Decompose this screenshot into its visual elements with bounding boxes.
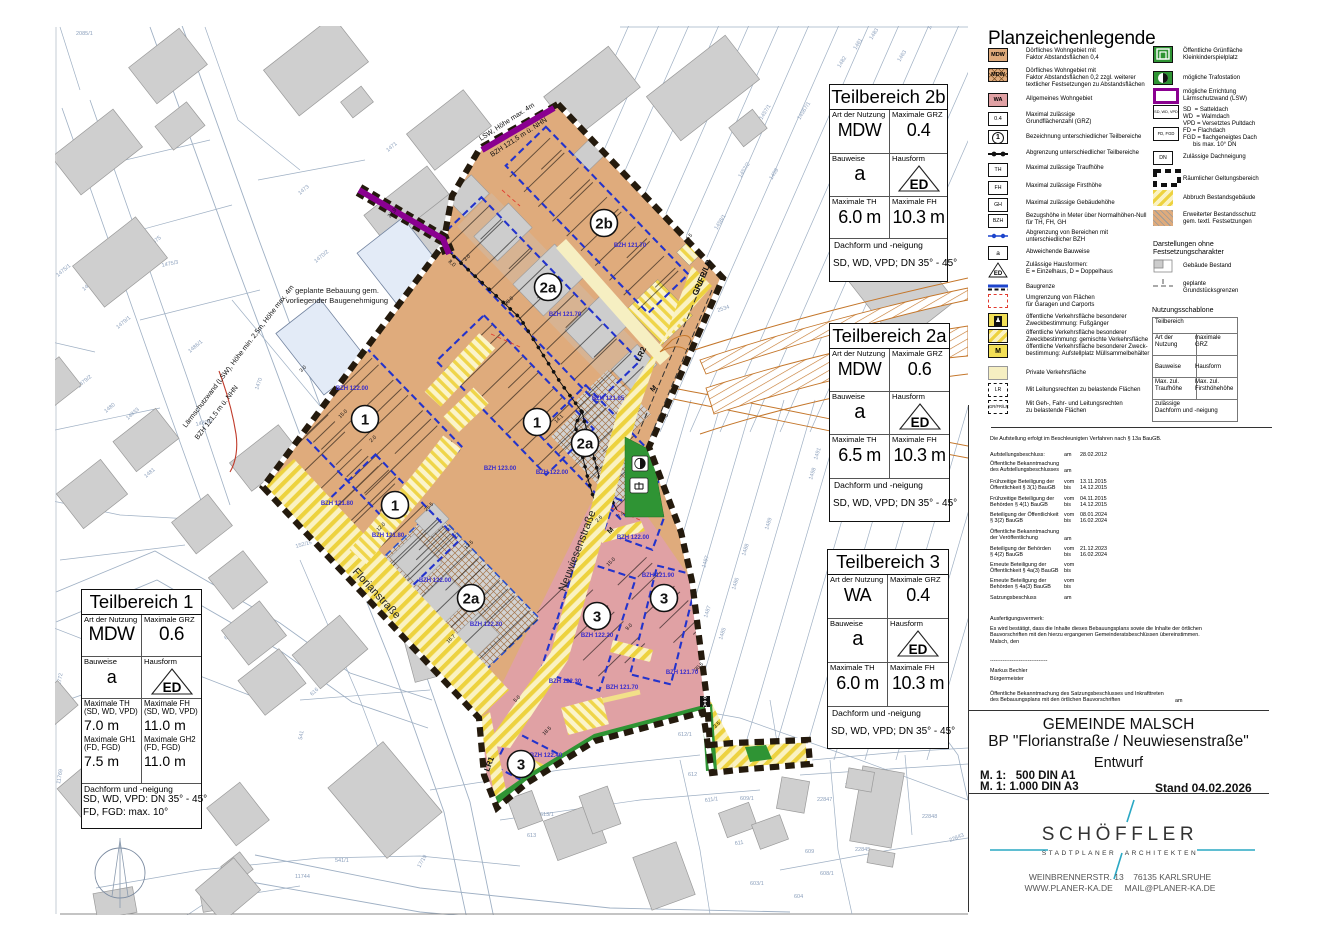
svg-text:603/1: 603/1 — [750, 881, 764, 887]
svg-text:ED: ED — [910, 415, 929, 430]
svg-text:BZH 122.00: BZH 122.00 — [419, 578, 452, 584]
svg-text:BZH 122.00: BZH 122.00 — [536, 470, 569, 476]
svg-text:613/1: 613/1 — [540, 812, 554, 818]
svg-text:1459: 1459 — [769, 167, 781, 181]
svg-text:1458/1: 1458/1 — [714, 214, 728, 231]
svg-text:611: 611 — [734, 840, 744, 847]
svg-text:22843: 22843 — [949, 833, 965, 844]
svg-text:BZH 122.00: BZH 122.00 — [617, 535, 650, 541]
svg-text:geplante Bebauung gem.: geplante Bebauung gem. — [295, 286, 379, 295]
svg-text:541: 541 — [298, 730, 306, 740]
svg-text:1481: 1481 — [143, 467, 156, 479]
svg-text:ED: ED — [909, 177, 928, 192]
svg-text:BZH 121.70: BZH 121.70 — [666, 670, 699, 676]
svg-text:1483: 1483 — [869, 27, 881, 41]
svg-text:608/1: 608/1 — [820, 871, 834, 877]
svg-text:14567/1: 14567/1 — [797, 101, 813, 121]
svg-text:1486/1: 1486/1 — [187, 339, 204, 354]
svg-text:1498: 1498 — [808, 467, 817, 481]
svg-text:BZH 122.20: BZH 122.20 — [470, 622, 503, 628]
svg-text:1475/1: 1475/1 — [55, 263, 72, 278]
svg-text:1485: 1485 — [718, 627, 727, 641]
svg-text:1489: 1489 — [764, 517, 773, 531]
svg-text:BZH 121.70: BZH 121.70 — [614, 243, 647, 249]
svg-text:BZH 121.80: BZH 121.80 — [372, 533, 405, 539]
svg-text:613: 613 — [527, 833, 536, 839]
svg-text:2a: 2a — [540, 280, 557, 297]
svg-text:vorliegender Baugenehmigung: vorliegender Baugenehmigung — [286, 296, 388, 305]
svg-text:BZH 121.90: BZH 121.90 — [642, 573, 675, 579]
svg-text:22848: 22848 — [922, 814, 937, 820]
svg-text:11769: 11769 — [56, 769, 64, 785]
svg-text:604: 604 — [794, 894, 803, 900]
svg-text:2534: 2534 — [717, 304, 731, 313]
svg-text:1497: 1497 — [701, 555, 710, 569]
svg-text:1491: 1491 — [813, 447, 822, 461]
svg-text:612/1: 612/1 — [678, 732, 692, 738]
svg-text:1490: 1490 — [927, 17, 939, 31]
svg-text:BZH 122.00: BZH 122.00 — [336, 386, 369, 392]
svg-text:1: 1 — [533, 415, 541, 432]
svg-text:1479/1: 1479/1 — [115, 315, 132, 330]
svg-text:609/1: 609/1 — [740, 796, 754, 802]
svg-text:152/19: 152/19 — [295, 540, 313, 550]
svg-text:612: 612 — [688, 772, 697, 778]
svg-text:1470: 1470 — [254, 377, 264, 391]
svg-text:2a: 2a — [463, 591, 480, 608]
svg-text:BZH 121.85: BZH 121.85 — [592, 396, 625, 402]
svg-text:BZH 122.20: BZH 122.20 — [581, 633, 614, 639]
svg-text:ED: ED — [994, 271, 1003, 277]
svg-text:2b: 2b — [595, 216, 613, 233]
svg-text:1486: 1486 — [731, 577, 740, 591]
svg-text:616: 616 — [309, 687, 320, 698]
svg-text:1: 1 — [361, 412, 369, 429]
svg-text:1488: 1488 — [741, 543, 750, 557]
svg-text:14833: 14833 — [125, 407, 140, 422]
svg-text:2085/1: 2085/1 — [76, 31, 93, 37]
svg-text:1471: 1471 — [385, 141, 398, 153]
svg-text:2a: 2a — [577, 436, 594, 453]
svg-text:1473: 1473 — [297, 184, 310, 196]
svg-text:3: 3 — [517, 757, 525, 774]
svg-text:1: 1 — [391, 498, 399, 515]
svg-text:11744: 11744 — [295, 874, 310, 880]
svg-text:1482: 1482 — [837, 55, 849, 69]
svg-text:541/1: 541/1 — [335, 858, 349, 864]
svg-text:22847: 22847 — [817, 797, 832, 803]
svg-text:1480: 1480 — [103, 402, 116, 414]
svg-text:1487: 1487 — [703, 605, 712, 619]
svg-text:BZH 121.80: BZH 121.80 — [321, 501, 354, 507]
svg-text:1470/2: 1470/2 — [313, 249, 330, 264]
svg-text:BZH 121,5 m ü. NHN: BZH 121,5 m ü. NHN — [194, 384, 240, 441]
svg-text:611/1: 611/1 — [704, 796, 718, 804]
svg-text:ED: ED — [909, 642, 928, 657]
svg-text:1463: 1463 — [897, 49, 909, 63]
svg-text:BZH 121.70: BZH 121.70 — [549, 312, 582, 318]
svg-text:609: 609 — [805, 849, 814, 855]
svg-text:BZH 121.70: BZH 121.70 — [606, 685, 639, 691]
svg-text:BZH 122.30: BZH 122.30 — [549, 679, 582, 685]
svg-text:3: 3 — [660, 591, 668, 608]
svg-text:ED: ED — [162, 680, 181, 695]
svg-text:1457/2: 1457/2 — [738, 162, 752, 179]
svg-text:BZH 123.00: BZH 123.00 — [484, 466, 517, 472]
svg-text:22845: 22845 — [855, 847, 870, 853]
svg-text:BZH 122.40: BZH 122.40 — [530, 753, 563, 759]
svg-text:3: 3 — [593, 609, 601, 626]
